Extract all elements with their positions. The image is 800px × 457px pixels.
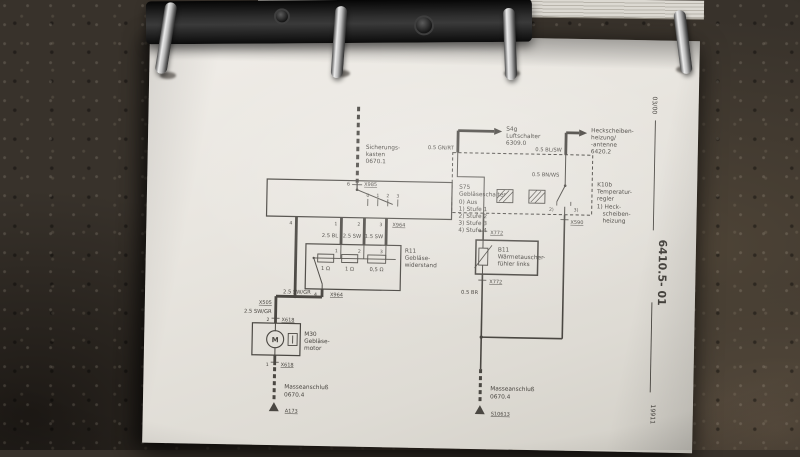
- rail-screw: [414, 15, 434, 35]
- wire-label: 0.5 BR: [461, 290, 479, 296]
- page-margin: 03/00 6410.5- 01 19911: [645, 96, 672, 424]
- blower-resistor-r11: 1 2 3 1 Ω 1 Ω 0,5 Ω R11 Gebläse- widerst…: [305, 244, 438, 301]
- contact-number: 2): [549, 207, 554, 213]
- connector-label: X618: [281, 362, 294, 368]
- pin-number: 6: [347, 182, 350, 188]
- regulator-switch: 2) 3): [549, 154, 580, 215]
- diagram-page: Sicherungs- kasten 0670.1 6 X985 0 1 2 3…: [142, 31, 700, 453]
- legend-line: regler: [597, 196, 615, 202]
- fuse-label: Sicherungs-: [366, 145, 400, 152]
- margin-rule: [650, 302, 652, 392]
- resistor-label: R11: [405, 249, 417, 255]
- resistor-value: 1 Ω: [345, 267, 354, 273]
- right-ground: Masseanschluß 0670.4 S10613: [475, 369, 535, 418]
- left-ground: 1 X618 Masseanschluß 0670.4 A173: [265, 355, 330, 415]
- ground-label: 0670.4: [284, 392, 305, 398]
- ground-point: A173: [285, 408, 298, 414]
- ground-wire: [274, 367, 275, 401]
- resistor-value: 0,5 Ω: [370, 267, 384, 273]
- margin-bottom-code: 19911: [649, 404, 656, 424]
- connector-label: X985: [364, 182, 377, 188]
- sensor-label: Wärmetauscher-: [498, 254, 546, 261]
- rear-window-label: Heckscheiben-: [591, 128, 634, 135]
- air-switch-label: S4g: [506, 127, 517, 133]
- motor-label: motor: [304, 346, 322, 352]
- rear-window-label: -antenne: [591, 142, 618, 149]
- wire-label: 2.5 SW/GR: [283, 289, 311, 296]
- wire-label: 1.5 SW: [365, 234, 383, 240]
- legend-line: 1) Heck-: [597, 204, 621, 210]
- wire-pin3: [386, 218, 387, 245]
- heater-element-icon: [529, 190, 545, 203]
- wire-label: 2.5 SW: [343, 233, 361, 239]
- contact-number: 2: [386, 193, 389, 199]
- air-switch-label: Luftschalter: [506, 134, 541, 141]
- ground-label: Masseanschluß: [284, 384, 329, 391]
- rear-window-feed: Heckscheiben- heizung/ -antenne 6420.2 0…: [535, 127, 634, 156]
- margin-rule: [653, 120, 655, 230]
- pin-number: 3: [380, 249, 383, 255]
- contact-number: 1: [376, 193, 379, 199]
- resistor-label: Gebläse-: [405, 256, 431, 262]
- pin-number: 2: [357, 222, 360, 228]
- pin-number: 1: [335, 248, 338, 254]
- contact-number: 0: [366, 193, 369, 199]
- rail-screw: [274, 8, 290, 24]
- air-switch-feed: S4g Luftschalter 6309.0 0.5 GN/RT: [428, 125, 541, 154]
- wire-label: 0.5 GN/RT: [428, 145, 455, 152]
- fuse-feed: Sicherungs- kasten 0670.1 6 X985: [347, 107, 401, 189]
- pin-number: 1: [334, 221, 337, 227]
- contact-number: 3): [574, 207, 579, 213]
- pin-number: 4: [289, 220, 292, 226]
- legend-line: heizung: [602, 218, 625, 224]
- junction-dot: [480, 336, 483, 339]
- legend-line: S75: [459, 185, 470, 191]
- legend-line: K10b: [597, 182, 612, 188]
- connector-label: X505: [259, 300, 272, 306]
- fuse-wire: [357, 107, 358, 183]
- regulator-label: K10b Temperatur- regler 1) Heck- scheibe…: [595, 182, 632, 225]
- fuse-label: kasten: [366, 152, 386, 158]
- ground-label: Masseanschluß: [490, 386, 535, 393]
- switch-legend: S75 Gebläseschalter 0) Aus 1) Stufe 1 2)…: [458, 185, 506, 235]
- ground-label: 0670.4: [490, 394, 511, 400]
- fuse-label: 0670.1: [366, 159, 387, 165]
- motor-feed: 2.5 SW/GR X505 2.5 SW/GR 2 X618: [244, 288, 322, 324]
- pin-number: 2: [267, 317, 270, 323]
- connector-label: X772: [489, 279, 502, 285]
- pin-number: 3: [379, 222, 382, 228]
- document-number: 6410.5- 01: [655, 239, 669, 305]
- motor-label: M30: [304, 332, 317, 338]
- blower-motor-m30: M M30 Gebläse- motor: [252, 323, 330, 356]
- connector-label: X964: [392, 222, 405, 228]
- connector-label: X964: [330, 292, 343, 298]
- ground-symbol: [269, 402, 279, 411]
- sensor-label: fühler links: [498, 261, 530, 268]
- rear-window-label: heizung/: [591, 135, 616, 141]
- switch-contacts: 0 1 2 3: [366, 193, 399, 207]
- pin-number: 2: [358, 249, 361, 255]
- legend-line: Temperatur-: [596, 189, 632, 196]
- wire-pin2: [364, 218, 365, 245]
- connector-label: X772: [490, 230, 503, 236]
- legend-line: 0) Aus: [459, 200, 478, 206]
- legend-line: Gebläseschalter: [459, 192, 506, 199]
- wire-label: 2.5 SW/GR: [244, 309, 272, 316]
- wire-pin4: [295, 217, 297, 297]
- connector-label: X590: [570, 220, 583, 226]
- ground-point: S10613: [491, 411, 510, 417]
- air-switch-label: 6309.0: [506, 141, 527, 147]
- resistor-chain: [314, 258, 396, 260]
- heat-exchanger-sensor-b11: X772 B11 Wärmetauscher- fühler links X77…: [460, 213, 547, 371]
- wire-pin1: [341, 217, 342, 244]
- contact-number: 3: [396, 193, 399, 199]
- arrow-right-icon: [579, 129, 587, 136]
- resistor-value: 1 Ω: [321, 266, 330, 272]
- wiring-diagram: Sicherungs- kasten 0670.1 6 X985 0 1 2 3…: [142, 31, 700, 453]
- margin-top-code: 03/00: [651, 96, 658, 114]
- wire-label: 2.5 BL: [322, 233, 339, 239]
- pin-number: 1: [266, 362, 269, 368]
- sensor-label: B11: [498, 247, 510, 253]
- binder-ring: [503, 8, 518, 80]
- connector-label: X618: [281, 317, 294, 323]
- motor-letter: M: [272, 336, 279, 344]
- arrow-right-icon: [494, 128, 502, 135]
- ground-wire: [480, 369, 481, 404]
- ground-symbol: [475, 405, 485, 414]
- legend-line: scheiben-: [603, 211, 631, 218]
- motor-label: Gebläse-: [304, 339, 330, 345]
- resistor-label: widerstand: [405, 263, 438, 270]
- wire-label: 0.5 BL/SW: [535, 147, 562, 154]
- rear-window-label: 6420.2: [591, 149, 612, 155]
- wire-label: 0.5 BN/WS: [532, 172, 560, 179]
